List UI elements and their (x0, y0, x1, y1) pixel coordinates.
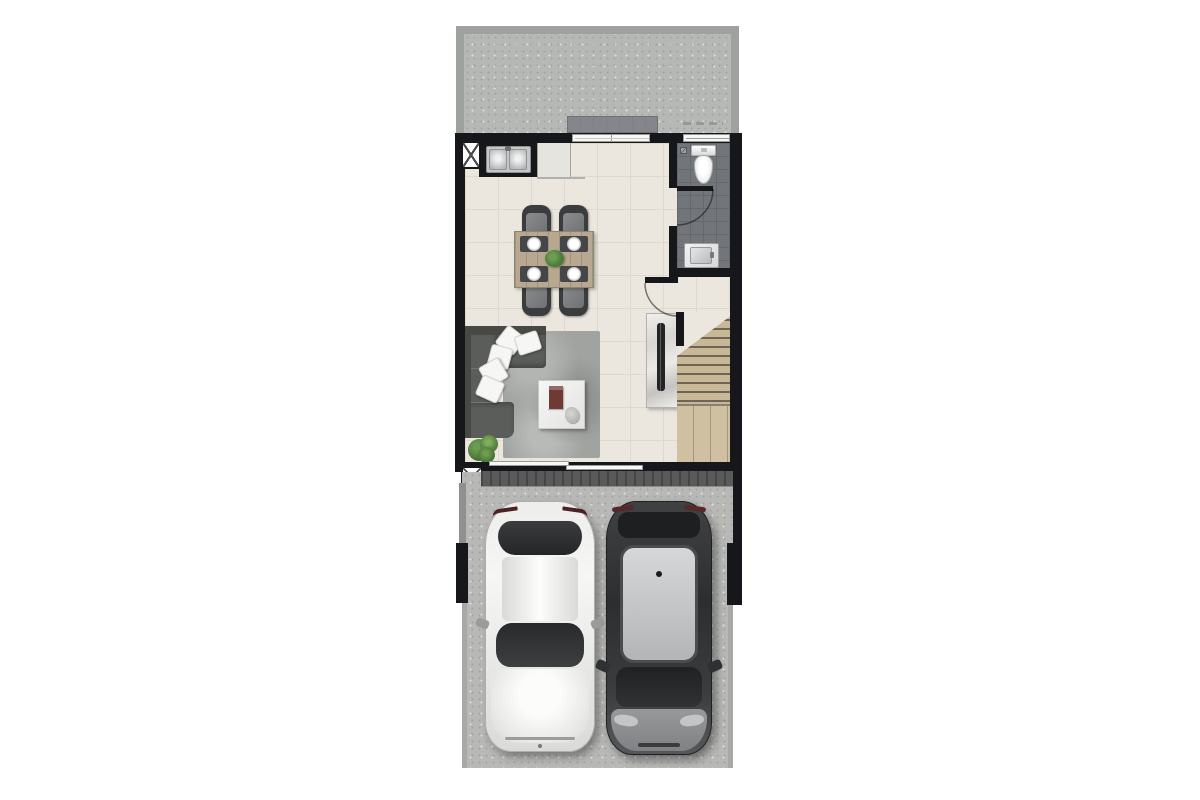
sliding-door-bottom-panel (489, 461, 569, 466)
placemat (520, 266, 548, 282)
decor-bowl (565, 407, 579, 423)
suv-roof (620, 545, 698, 663)
carport-curb-left (462, 603, 467, 768)
sedan-rear-glass (498, 521, 582, 555)
wall-stub-console (676, 312, 684, 346)
kitchen-counter-edge (537, 177, 585, 179)
carport-curb-right (728, 605, 733, 768)
book (547, 386, 563, 409)
entry-step (567, 116, 658, 133)
wall-left (455, 133, 465, 472)
sink-basin-right (509, 149, 527, 170)
suv-grille (638, 743, 680, 747)
suv-windshield (616, 667, 702, 707)
drain-grate-band (481, 471, 733, 487)
sliding-door-track (575, 138, 649, 139)
sedan-badge (538, 744, 542, 748)
wall-bathroom-left-lower (669, 226, 677, 268)
placemat (560, 266, 588, 282)
sliding-door-bottom-panel (566, 465, 643, 470)
sedan-front-grille (505, 737, 575, 740)
toilet-flush-button (701, 148, 707, 152)
sedan-windshield (496, 623, 584, 667)
table-centerpiece-plant (545, 250, 564, 267)
car-white-sedan (483, 499, 597, 754)
suv-rear-glass (618, 512, 700, 538)
staircase-landing (677, 404, 730, 462)
bathroom-door-leaf (677, 186, 713, 191)
bathroom-window (683, 134, 730, 142)
plate (567, 267, 581, 281)
potted-plant (466, 435, 500, 464)
sedan-roof (502, 557, 578, 621)
vanity-faucet (710, 252, 714, 258)
sink-faucet (505, 146, 511, 151)
suv-antenna (656, 571, 662, 577)
tv (657, 323, 665, 391)
placemat (520, 236, 548, 252)
sink-basin-left (489, 149, 507, 170)
vanity-sink (690, 247, 712, 264)
car-dark-suv (604, 499, 714, 757)
hall-door-leaf (645, 277, 678, 283)
terrace-surface-marks (683, 122, 723, 125)
floor-drain (680, 147, 687, 154)
carport-wall-stub-left (456, 543, 468, 603)
service-shaft-top (461, 141, 481, 169)
window-glass-line (686, 138, 729, 139)
carport-wall-stub-right (727, 543, 742, 605)
wall-bathroom-left-upper (669, 133, 677, 188)
plate (527, 237, 541, 251)
kitchen-counter (537, 142, 571, 179)
sedan-hood (491, 669, 589, 743)
plate (527, 267, 541, 281)
plate (567, 237, 581, 251)
sliding-door-top (572, 134, 650, 142)
floor-plan (0, 0, 1200, 800)
wall-bathroom-bottom (669, 268, 739, 277)
carport-side-wall-left (459, 483, 466, 543)
placemat (560, 236, 588, 252)
